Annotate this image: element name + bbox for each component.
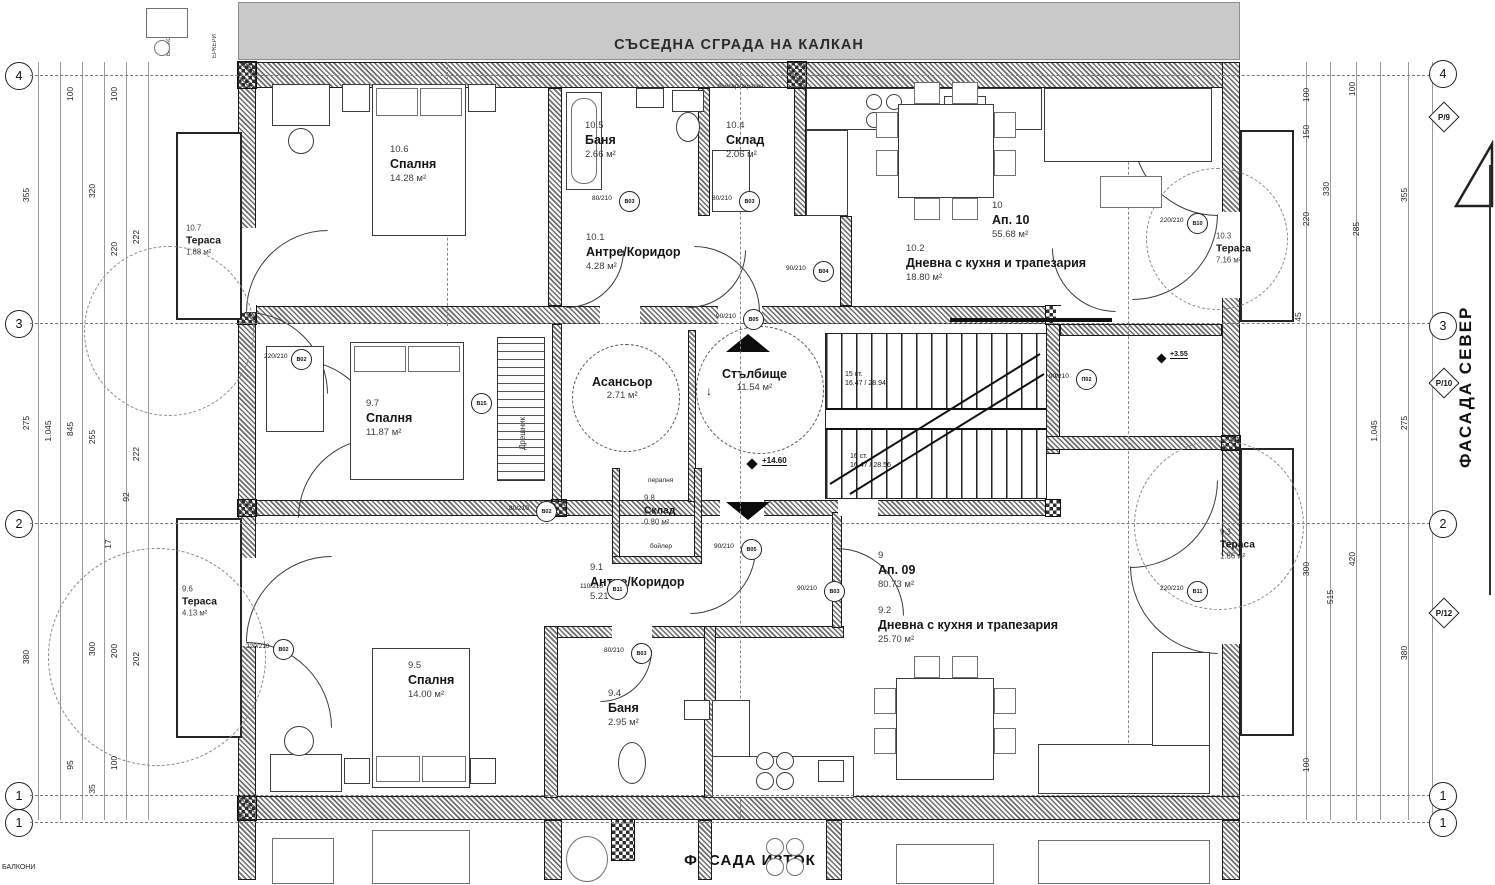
room-name: Склад [726,132,764,148]
pillow-icon [422,756,466,782]
door-tag: В02 [291,349,312,370]
chair-icon [288,128,314,154]
sofa-chaise-icon [1152,652,1210,746]
bed-icon [372,830,470,884]
room-area: 11.87 м² [366,427,412,439]
room-label: 10.1Антре/Коридор4.28 м² [586,232,681,273]
dimension-text: 515 [1325,583,1335,611]
door-size-label: 80/210 [604,647,624,654]
room-num: 9.2 [878,605,1058,617]
door-arc [694,246,760,312]
dimension-text: 45 [1293,303,1303,331]
nightstand-icon [470,758,496,784]
door-size-label: 220/210 [1160,585,1184,592]
elevation-marker [746,458,757,469]
room-area: 14.00 м² [408,689,454,701]
dimension-line [1408,62,1409,820]
wall-segment [1222,820,1240,880]
dimension-text: 100 [109,749,119,777]
coffee-table-icon [1100,176,1162,208]
door-tag: В15 [471,393,492,414]
stair-label: Стълбище 11.54 м² [722,366,787,395]
toilet-bowl-icon [676,112,700,142]
pillow-icon [376,756,420,782]
door-tag: В05 [743,309,764,330]
grid-pentagon-marker: Р/12 [1430,599,1458,627]
room-area: 18.80 м² [906,272,1086,284]
swing-envelope [84,246,254,416]
dimension-text: 100 [1301,751,1311,779]
sofa-icon [1038,840,1210,884]
chair-icon [876,150,898,176]
room-num: 10.6 [390,144,436,156]
room-num: 9.6 [182,585,217,595]
room-num: 9.4 [608,688,639,700]
room-num: 10.1 [586,232,681,244]
washer-label: пералня [648,477,673,484]
room-area: 1.86 м² [1220,551,1255,561]
room-num: 9.1 [590,562,685,574]
room-area: 2.95 м² [608,717,639,729]
room-num: 10.5 [585,120,616,132]
door-size-label: 90/210 [716,313,736,320]
boiler-label: бойлер [650,543,672,550]
room-name: Баня [608,700,639,716]
room-num: 9.8 [644,494,675,504]
floor-plan-canvas: СЪСЕДНА СГРАДА НА КАЛКАН ФАСАДА СЕВЕР ФА… [0,0,1495,885]
axis-line-horizontal [30,822,1430,823]
grid-bubble: 3 [1429,312,1457,340]
wall-segment [548,88,562,306]
room-label: 9.1Антре/Коридор5.21 м² [590,562,685,603]
chair-icon [874,688,896,714]
door-size-label: 220/210 [246,643,270,650]
grid-pentagon-marker: Р/9 [1430,103,1458,131]
dimension-text: 92 [121,483,131,511]
grid-bubble: 1 [5,782,33,810]
dresser-icon [270,754,342,792]
door-tag: В05 [741,539,762,560]
table-icon [146,8,188,38]
kitchen-sink-icon [818,760,844,782]
section-arrow-down [726,502,770,520]
dimension-text: 100 [109,80,119,108]
toilet-icon [672,90,704,112]
axis-line-horizontal [30,75,1430,76]
stair-flight-note: 15 ст. 16.47 / 28.94 [845,370,886,388]
door-size-label: 90/210 [714,543,734,550]
chair-icon [994,150,1016,176]
dimension-line [148,62,149,820]
room-area: 7.16 м² [1216,255,1251,265]
sofa-icon [1038,744,1210,794]
chair-icon [876,112,898,138]
room-num: 10.4 [726,120,764,132]
room-label: 9.7Спалня11.87 м² [366,398,412,439]
swing-envelope [48,548,266,766]
dimension-text: 222 [131,223,141,251]
pillow-icon [408,346,460,372]
room-label: 9.6Тераса4.13 м² [182,585,217,619]
room-area: 55.68 м² [992,229,1029,241]
stove-burner-icon [786,858,804,876]
chair-icon [914,198,940,220]
grid-bubble: 1 [1429,809,1457,837]
door-tag: В10 [1187,213,1208,234]
dimension-text: 380 [21,643,31,671]
dimension-text: 17 [103,530,113,558]
stove-burner-icon [766,838,784,856]
stair-flight-note: 16 ст. 16.47 / 28.56 [850,452,891,470]
pentagon-label: Р/9 [1430,103,1458,131]
pillow-icon [376,88,418,116]
wall-segment [552,324,562,502]
room-area: 2.66 м² [585,149,616,161]
stove-burner-icon [766,858,784,876]
room-area: 4.28 м² [586,261,681,273]
dimension-text: 222 [131,440,141,468]
door-size-label: 80/210 [509,505,529,512]
grid-bubble: 3 [5,310,33,338]
axis-line-horizontal [30,523,1430,524]
dimension-text: 255 [87,423,97,451]
door-size-label: 90/210 [1049,373,1069,380]
room-num: 9.3 [1220,528,1255,538]
lift-area: 2.71 м² [592,390,652,402]
stove-burner-icon [866,94,882,110]
chair-icon [154,40,170,56]
adjacent-building-banner: СЪСЕДНА СГРАДА НА КАЛКАН [238,2,1240,60]
door-tag: П02 [1076,369,1097,390]
table-icon [284,726,314,756]
dimension-text: 300 [87,635,97,663]
column-block [238,500,256,516]
wall-segment [544,626,558,798]
door-size-label: 220/210 [1160,217,1184,224]
dimension-text: 845 [65,415,75,443]
room-label: 9.5Спалня14.00 м² [408,660,454,701]
dimension-text: 220 [109,235,119,263]
chair-icon [874,728,896,754]
dimension-line [126,62,127,820]
dimension-line [1432,62,1433,820]
room-area: 14.28 м² [390,173,436,185]
stove-burner-icon [786,838,804,856]
room-name: Баня [585,132,616,148]
dimension-text: 220 [1301,205,1311,233]
dimension-text: 1.045 [1369,417,1379,445]
room-name: Тераса [186,234,221,247]
dimension-text: 355 [21,181,31,209]
dimension-line [38,62,39,820]
room-num: 9.7 [366,398,412,410]
dimension-line [104,62,105,820]
door-size-label: 90/210 [786,265,806,272]
fridge-icon [806,130,848,216]
chair-icon [952,656,978,678]
door-tag: В02 [536,501,557,522]
room-name: Тераса [1216,242,1251,255]
dimension-text: 200 [109,637,119,665]
grid-bubble: 1 [1429,782,1457,810]
wall-segment [1046,324,1060,454]
dimension-text: 100 [1301,81,1311,109]
room-name: Спалня [408,672,454,688]
wardrobe-icon [498,338,544,480]
room-label: 9Ап. 0980.73 м² [878,550,915,591]
room-area: 4.13 м² [182,608,217,618]
room-num: 10 [992,200,1029,212]
room-name: Спалня [390,156,436,172]
wall-segment [694,468,702,560]
dimension-text: 275 [1399,409,1409,437]
dining-table-icon [896,844,994,884]
door-tag: В02 [273,639,294,660]
door-size-label: 80/210 [592,195,612,202]
room-area: 1.88 м² [186,247,221,257]
dimension-text: 300 [1301,555,1311,583]
room-name: Антре/Коридор [586,244,681,260]
dimension-text: 355 [1399,181,1409,209]
stove-burner-icon [756,772,774,790]
room-name: Склад [644,504,675,517]
door-size-label: 90/210 [797,585,817,592]
column-block [1046,500,1060,516]
chair-icon [914,656,940,678]
dimension-line [60,62,61,820]
column-block [238,796,256,820]
door-opening [838,500,878,516]
room-label: 10.3Тераса7.16 м² [1216,232,1251,266]
facade-east-label: ФАСАДА ИЗТОК [600,852,900,869]
wall-segment [826,820,842,880]
grid-bubble: 4 [1429,60,1457,88]
dimension-line [82,62,83,820]
stove-burner-icon [756,752,774,770]
pillow-icon [420,88,462,116]
grid-bubble: 1 [5,809,33,837]
wall-segment [794,88,806,216]
dimension-text: 320 [87,177,97,205]
room-num: 10.7 [186,224,221,234]
dimension-line [1306,62,1307,820]
desk-icon [272,84,330,126]
toilet-bowl-icon [618,742,646,784]
door-opening [600,306,640,324]
elevation-marker [1157,354,1167,364]
room-num: 10.2 [906,243,1086,255]
room-name: Антре/Коридор [590,574,685,590]
dimension-text: 330 [1321,175,1331,203]
room-num: 9 [878,550,915,562]
room-label: 10.2Дневна с кухня и трапезария18.80 м² [906,243,1086,284]
wall-segment [612,468,620,560]
room-area: 80.73 м² [878,579,915,591]
corner-label-balconies-bottom: БАЛКОНИ [2,864,35,871]
wall-segment [238,796,1240,820]
desk-icon [272,838,334,884]
chair-icon [994,728,1016,754]
lift-name: Асансьор [592,374,652,390]
dimension-line [1356,62,1357,820]
door-size-label: 80/210 [712,195,732,202]
chair-icon [994,688,1016,714]
dimension-text: 275 [21,409,31,437]
door-arc [246,230,328,312]
pentagon-label: Р/10 [1430,369,1458,397]
nightstand-icon [344,758,370,784]
grid-bubble: 4 [5,62,33,90]
nightstand-icon [468,84,496,112]
door-size-label: 110/210 [580,583,603,590]
door-size-label: 220/210 [264,353,288,360]
door-tag: В11 [607,579,628,600]
room-name: Дневна с кухня и трапезария [906,255,1086,271]
wall-segment [544,820,562,880]
wall-segment [544,626,844,638]
sink-icon [636,88,664,108]
room-name: Тераса [182,595,217,608]
wall-segment [698,820,712,880]
door-tag: В03 [619,191,640,212]
dimension-text: 420 [1347,545,1357,573]
corner-label-erkeri: ЕРКЕРИ [212,16,218,58]
room-num: 10.3 [1216,232,1251,242]
stair-down-arrow: ↓ [706,384,712,398]
dimension-text: 380 [1399,639,1409,667]
lift-label: Асансьор 2.71 м² [592,374,652,403]
room-name: Ап. 09 [878,562,915,578]
chair-icon [952,198,978,220]
grid-bubble: 2 [5,510,33,538]
room-label: 9.4Баня2.95 м² [608,688,639,729]
dimension-text: 95 [65,751,75,779]
elevation-main: +14.60 [762,456,787,466]
dimension-text: 100 [65,80,75,108]
room-name: Спалня [366,410,412,426]
room-area: 2.06 м² [726,149,764,161]
sink-icon [684,700,710,720]
axis-line-vertical [1128,62,1129,798]
wall-segment [840,216,852,306]
room-area: 5.21 м² [590,591,685,603]
sink-icon [566,836,608,882]
room-name: Тераса [1220,538,1255,551]
room-name: Дневна с кухня и трапезария [878,617,1058,633]
axis-line-horizontal [30,795,1430,796]
stair-rail-lines [826,334,1046,498]
room-name: Ап. 10 [992,212,1029,228]
grid-bubble: 2 [1429,510,1457,538]
elevation-side: +3.55 [1170,351,1188,359]
dining-table-icon [898,104,994,198]
door-opening [612,626,652,638]
axis-line-horizontal [30,323,1430,324]
room-num: 9.5 [408,660,454,672]
room-label: 10Ап. 1055.68 м² [992,200,1029,241]
right-border-line [1489,165,1491,595]
room-label: 9.2Дневна с кухня и трапезария25.70 м² [878,605,1058,646]
dimension-text: 202 [131,645,141,673]
dimension-text: 35 [87,775,97,803]
wall-segment [238,820,256,880]
nightstand-icon [342,84,370,112]
pentagon-label: Р/12 [1430,599,1458,627]
door-tag: В11 [1187,581,1208,602]
chair-icon [952,82,978,104]
room-label: 10.6Спалня14.28 м² [390,144,436,185]
room-label: 10.7Тераса1.88 м² [186,224,221,258]
room-label: 9.3Тераса1.86 м² [1220,528,1255,562]
door-tag: В03 [631,643,652,664]
dimension-text: 285 [1351,215,1361,243]
sofa-icon [1044,88,1212,162]
wall-segment [256,306,1046,324]
room-area: 25.70 м² [878,634,1058,646]
tv-icon [950,318,1112,322]
column-block [612,820,634,860]
chair-icon [914,82,940,104]
dimension-text: 1.045 [43,417,53,445]
dimension-text: 100 [1347,75,1357,103]
dimension-line [1380,62,1381,820]
stove-burner-icon [776,752,794,770]
dimension-text: 150 [1301,118,1311,146]
room-label: 10.5Баня2.66 м² [585,120,616,161]
chair-icon [994,112,1016,138]
door-tag: В03 [739,191,760,212]
section-arrow-up [726,334,770,352]
pillow-icon [354,346,406,372]
door-tag: В03 [824,581,845,602]
stair-name: Стълбище [722,366,787,382]
stove-burner-icon [776,772,794,790]
stair-area: 11.54 м² [722,382,787,394]
grid-pentagon-marker: Р/10 [1430,369,1458,397]
wall-segment [1060,324,1222,336]
door-tag: В04 [813,261,834,282]
dining-table-icon [896,678,994,780]
room-label: 10.4Склад2.06 м² [726,120,764,161]
